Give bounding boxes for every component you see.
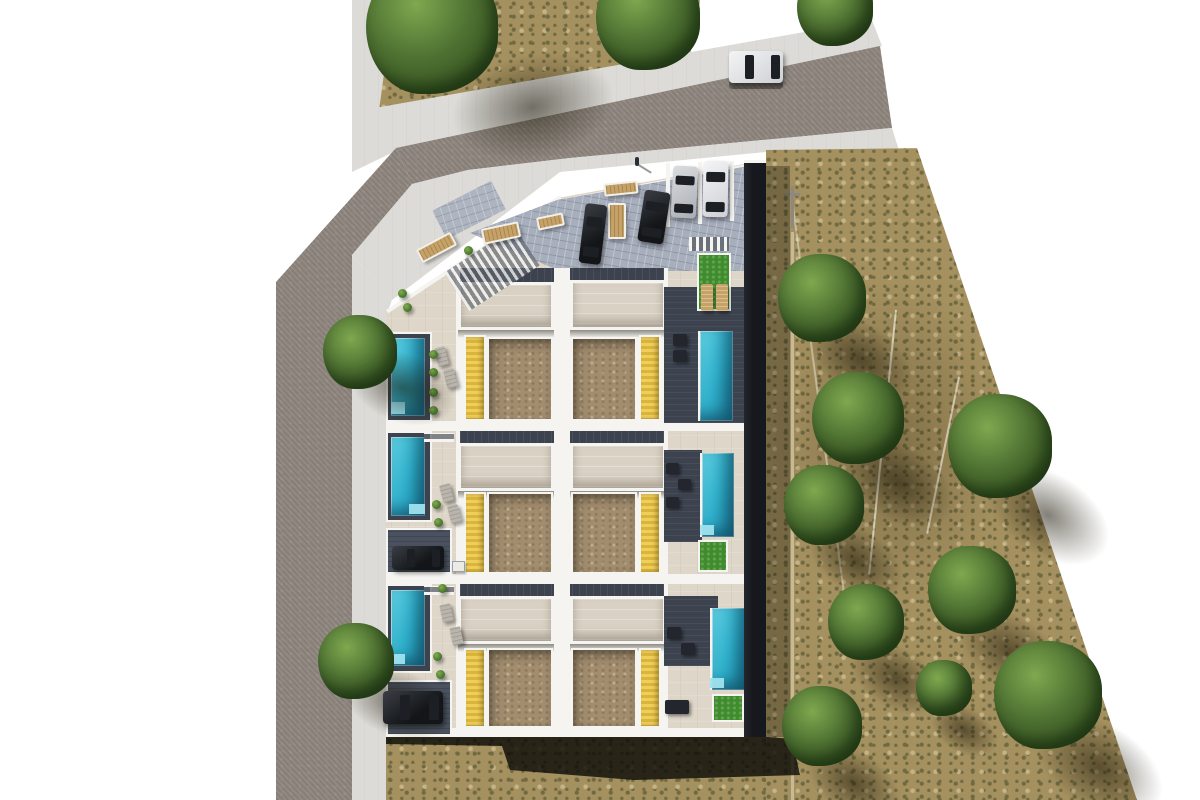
pergola-canopy (464, 648, 486, 728)
field-tree (812, 372, 904, 464)
car-rear-glass (641, 227, 662, 239)
lawn-patch (712, 694, 744, 722)
car-rear-glass (432, 549, 441, 567)
steps (424, 433, 454, 442)
outdoor-sofa (667, 627, 681, 639)
field-tree (784, 465, 864, 545)
sun-lounger (716, 284, 728, 311)
shrub (429, 350, 438, 359)
outdoor-sofa (673, 350, 687, 362)
car-rear-glass (429, 695, 439, 720)
street-tree (318, 623, 394, 699)
outdoor-sofa (673, 334, 687, 346)
field-tree (948, 394, 1052, 498)
field-wall-shadow (766, 166, 790, 737)
person (635, 157, 639, 166)
villa-roof (570, 443, 666, 491)
ac-unit (452, 561, 465, 572)
pergola-canopy (639, 335, 661, 421)
pool-steps (710, 678, 724, 688)
gravel-courtyard (487, 648, 553, 728)
outdoor-sofa (678, 479, 691, 490)
car-rear-glass (674, 204, 693, 214)
car-in-garage (392, 546, 444, 570)
outdoor-sofa (681, 643, 695, 655)
shrub (438, 584, 447, 593)
parking-divider-wall (698, 162, 702, 224)
car-windshield (745, 55, 754, 79)
outdoor-sofa (666, 463, 679, 474)
field-tree (994, 641, 1102, 749)
east-wall-coping (744, 160, 766, 163)
field-tree (828, 584, 904, 660)
car-windshield (645, 201, 666, 213)
gravel-courtyard (571, 337, 637, 421)
pool-steps (700, 525, 714, 535)
field-tree (928, 546, 1016, 634)
outdoor-sofa (666, 497, 679, 508)
sun-lounger (701, 284, 713, 311)
center-divider-wall (554, 268, 570, 737)
car-windshield (400, 695, 410, 720)
shrub (436, 670, 445, 679)
villa-roof (570, 596, 666, 644)
gravel-courtyard (487, 492, 553, 574)
gravel-courtyard (487, 337, 553, 421)
pergola-canopy (639, 492, 661, 574)
swimming-pool (698, 331, 733, 421)
east-boundary-wall (744, 163, 766, 737)
pergola-canopy (639, 648, 661, 728)
field-tree (778, 254, 866, 342)
pergola-canopy (464, 492, 486, 574)
villa-roof (570, 280, 666, 330)
gravel-courtyard (571, 492, 637, 574)
car-windshield (585, 216, 603, 228)
shrub (434, 518, 443, 527)
shrub (433, 652, 442, 661)
walkway (386, 574, 766, 584)
parked-car (671, 165, 699, 218)
car-rear-glass (771, 55, 780, 79)
field-tree (782, 686, 862, 766)
shrub (398, 289, 407, 298)
shrub (403, 303, 412, 312)
shrub (432, 500, 441, 509)
pergola-canopy (464, 335, 486, 421)
car-rear-glass (582, 246, 600, 258)
villa-roof (458, 596, 554, 644)
car-on-road (729, 51, 783, 83)
site-plan-canvas (0, 0, 1200, 800)
car-windshield (407, 549, 416, 567)
lawn-patch (698, 540, 728, 572)
outdoor-sofa (665, 700, 689, 714)
bench (608, 203, 626, 239)
parked-car (703, 161, 729, 217)
car-windshield (675, 176, 694, 186)
gravel-courtyard (571, 648, 637, 728)
car-rear-glass (706, 202, 725, 212)
car-windshield (706, 172, 725, 182)
person-shadow (638, 164, 652, 174)
field-tree (916, 660, 972, 716)
car-in-garage (383, 691, 443, 724)
street-tree (323, 315, 397, 389)
parking-divider-wall (730, 161, 734, 221)
shrub (464, 246, 473, 255)
entrance-stairs (689, 237, 729, 251)
villa-roof (458, 443, 554, 491)
pool-steps (409, 504, 425, 514)
